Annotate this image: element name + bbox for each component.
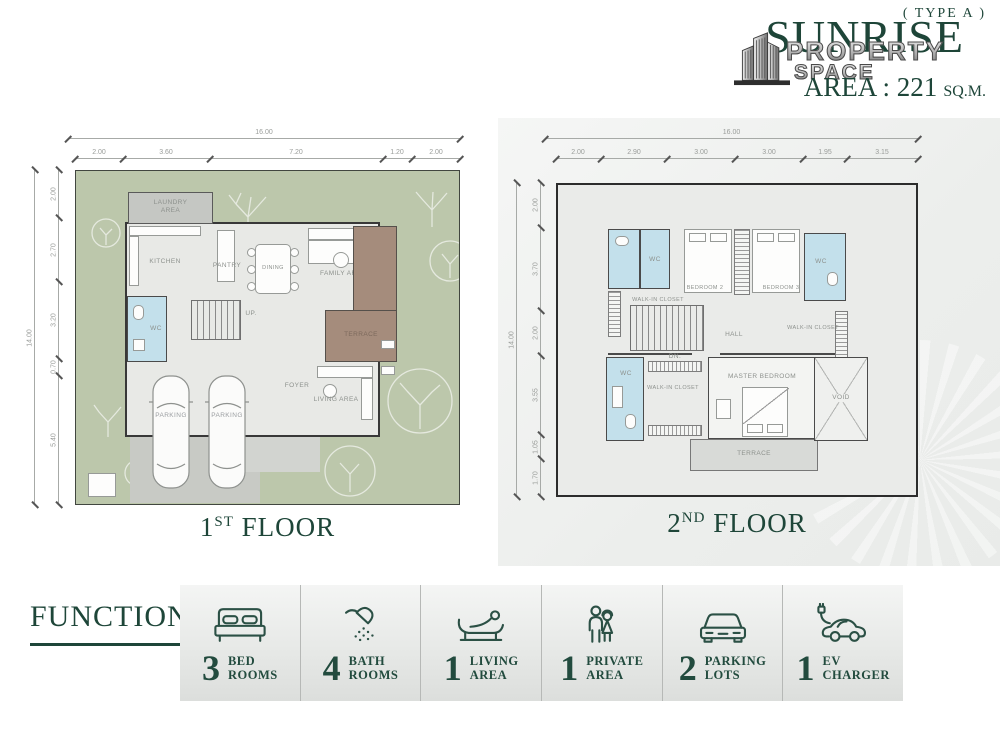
dim-label: 3.00 [762, 149, 776, 156]
bay-window [381, 340, 395, 349]
terrace [353, 226, 397, 312]
wardrobe [648, 361, 702, 372]
floor1-plan: LAUNDRY AREA KITCHEN PANTRY DINING FAMIL… [75, 170, 460, 505]
floor2-dim-total-left: 14.00 [516, 183, 517, 497]
dim-tick [456, 155, 463, 162]
family-icon [573, 603, 631, 647]
car-top-view [203, 368, 251, 498]
dim-label: 2.00 [533, 326, 540, 340]
bed [742, 387, 788, 437]
floor2-dim-segments-top: 2.00 2.90 3.00 3.00 1.95 3.15 [556, 158, 918, 159]
function-item-living: 1 LIVING AREA [420, 585, 541, 701]
function-label: PARKING [705, 655, 767, 669]
dim-label: 14.00 [509, 331, 516, 349]
dim-tick [55, 214, 62, 221]
function-label: ROOMS [228, 669, 278, 683]
dim-label: 2.00 [51, 187, 58, 201]
dim-label: 1.70 [533, 471, 540, 485]
car-icon [694, 603, 752, 647]
dim-label: 1.95 [818, 149, 832, 156]
stairs-up [191, 300, 241, 340]
terrace: TERRACE [690, 439, 818, 471]
floor1-title: 1ST FLOOR [75, 512, 460, 543]
dim-label: 3.20 [51, 313, 58, 327]
living-label: LIVING AREA [305, 396, 367, 404]
function-label: ROOMS [349, 669, 399, 683]
function-label: CHARGER [822, 669, 889, 683]
dim-label: 2.00 [92, 149, 106, 156]
pillow [747, 424, 763, 433]
floor1-title-number: 1 [200, 512, 215, 542]
function-item-private: 1 PRIVATE AREA [541, 585, 662, 701]
dim-tick [64, 135, 71, 142]
dim-label: 0.70 [51, 360, 58, 374]
wc-label: WC [811, 258, 831, 266]
bed-icon [211, 603, 269, 647]
function-label: PRIVATE [586, 655, 643, 669]
floor2-dim-segments-left: 2.00 3.70 2.00 3.55 1.05 1.70 [540, 183, 541, 497]
function-item-parking: 2 PARKING LOTS [662, 585, 783, 701]
function-label: AREA [586, 669, 643, 683]
function-panel: 3 BED ROOMS 4 BATH ROOMS [180, 585, 903, 701]
dim-label: 3.70 [533, 262, 540, 276]
dim-label: 16.00 [255, 129, 273, 136]
family-table [333, 252, 349, 268]
ev-charger-icon [814, 603, 872, 647]
function-count: 2 [679, 654, 697, 683]
living-sofa [317, 366, 373, 378]
function-count: 3 [202, 654, 220, 683]
floor1-title-ordinal: ST [214, 514, 234, 530]
foyer-label: FOYER [275, 382, 319, 390]
dim-label: 3.55 [533, 388, 540, 402]
brochure-page: { "header": { "type_label": "( TYPE A )"… [0, 0, 1000, 750]
area-label: AREA : 221SQ.M. [804, 72, 986, 103]
toilet [625, 414, 636, 429]
dim-label: 1.05 [533, 440, 540, 454]
dim-label: 16.00 [723, 129, 741, 136]
floor2-title-word: FLOOR [705, 508, 806, 538]
function-item-bedrooms: 3 BED ROOMS [180, 585, 300, 701]
parking-label: PARKING [147, 412, 195, 420]
dining-chair [290, 248, 299, 257]
terrace-label: TERRACE [326, 331, 396, 339]
wc-room: WC [127, 296, 167, 362]
stairs-label: UP. [241, 310, 261, 318]
pantry-label: PANTRY [205, 262, 249, 270]
dim-label: 2.00 [571, 149, 585, 156]
dim-tick [379, 155, 386, 162]
floor1-title-word: FLOOR [234, 512, 335, 542]
wc-label: WC [641, 256, 669, 264]
function-count: 1 [444, 654, 462, 683]
laundry-area: LAUNDRY AREA [128, 192, 213, 224]
bedroom3-label: BEDROOM 3 [750, 285, 812, 292]
entry-walkway [245, 437, 320, 472]
buildings-icon [734, 24, 790, 92]
laundry-label-2: AREA [161, 207, 180, 214]
pillow [710, 233, 727, 242]
stairs-down [630, 305, 704, 351]
utility-pad [88, 473, 116, 497]
dim-label: 3.60 [159, 149, 173, 156]
toilet [615, 236, 629, 246]
function-label: BATH [349, 655, 399, 669]
floor1-dim-segments-left: 2.00 2.70 3.20 0.70 5.40 [58, 170, 59, 505]
function-title: FUNCTION [30, 600, 194, 646]
dim-tick [31, 501, 38, 508]
function-count: 1 [560, 654, 578, 683]
car-top-view [147, 368, 195, 498]
bed [684, 229, 732, 293]
function-label: BED [228, 655, 278, 669]
closet-label: WALK-IN CLOSET [780, 325, 846, 332]
area-unit: SQ.M. [943, 83, 986, 100]
wardrobe [648, 425, 702, 436]
sink [612, 386, 623, 408]
toilet [133, 305, 144, 320]
bay-window [381, 366, 395, 375]
dim-tick [408, 155, 415, 162]
pillow [778, 233, 795, 242]
void-label: VOID [828, 394, 854, 402]
closet-label: WALK-IN CLOSET [640, 385, 706, 392]
dim-label: 3.15 [875, 149, 889, 156]
wc-room: WC [606, 357, 644, 441]
pillow [689, 233, 706, 242]
kitchen-label: KITCHEN [137, 258, 193, 266]
floor2-title: 2ND FLOOR [556, 508, 918, 539]
floor2-title-ordinal: ND [682, 510, 706, 526]
brand-header: ( TYPE A ) SUNRISE PROPERTY SPACE AREA :… [670, 0, 1000, 110]
bed [752, 229, 800, 293]
dining-chair [290, 282, 299, 291]
function-label: LIVING [470, 655, 519, 669]
terrace: TERRACE [325, 310, 397, 362]
dim-label: 1.20 [390, 149, 404, 156]
function-label: AREA [470, 669, 519, 683]
function-item-bathrooms: 4 BATH ROOMS [300, 585, 421, 701]
hall-label: HALL [714, 331, 754, 339]
terrace-label: TERRACE [691, 450, 817, 458]
floor1-dim-segments-top: 2.00 3.60 7.20 1.20 2.00 [75, 158, 460, 159]
dim-tick [456, 135, 463, 142]
wardrobe [835, 311, 848, 359]
floor1-dim-total-top: 16.00 [68, 138, 460, 139]
wc-label: WC [616, 370, 636, 378]
dim-label: 2.90 [627, 149, 641, 156]
floor2-plan: WC WALK-IN CLOSET BEDROOM 2 BEDROOM 3 WC… [556, 183, 918, 497]
floor2-title-number: 2 [667, 508, 682, 538]
dining-chair [290, 265, 299, 274]
dim-tick [119, 155, 126, 162]
dim-label: 2.70 [51, 243, 58, 257]
dim-label: 7.20 [289, 149, 303, 156]
floor2-dim-total-top: 16.00 [545, 138, 918, 139]
parking-label: PARKING [203, 412, 251, 420]
sink [133, 339, 145, 351]
wc-room: WC [608, 229, 670, 289]
toilet [827, 272, 838, 286]
dim-tick [55, 166, 62, 173]
closet-label: WALK-IN CLOSET [620, 297, 696, 304]
master-label: MASTER BEDROOM [716, 373, 808, 381]
function-label: LOTS [705, 669, 767, 683]
dim-tick [71, 155, 78, 162]
dim-label: 14.00 [27, 329, 34, 347]
wc-label: WC [146, 325, 166, 333]
dim-tick [55, 501, 62, 508]
pillow [757, 233, 774, 242]
dining-label: DINING [255, 265, 291, 272]
wardrobe [734, 229, 750, 295]
function-count: 1 [796, 654, 814, 683]
shower-icon [332, 603, 390, 647]
function-count: 4 [323, 654, 341, 683]
blanket-line [743, 388, 789, 424]
function-label: EV [822, 655, 889, 669]
wc-room: WC [804, 233, 846, 301]
floor1-dim-total-left: 14.00 [34, 170, 35, 505]
wall [720, 353, 848, 355]
area-value: AREA : 221 [804, 72, 938, 102]
dim-tick [206, 155, 213, 162]
dim-label: 2.00 [533, 198, 540, 212]
lounge-icon [452, 603, 510, 647]
dim-label: 3.00 [694, 149, 708, 156]
pantry-counter [217, 230, 235, 282]
dim-tick [31, 166, 38, 173]
dim-label: 5.40 [51, 433, 58, 447]
bedroom2-label: BEDROOM 2 [674, 285, 736, 292]
dim-tick [55, 278, 62, 285]
kitchen-counter [129, 226, 201, 236]
laundry-label: LAUNDRY [154, 199, 188, 206]
pillow [767, 424, 783, 433]
dim-label: 2.00 [429, 149, 443, 156]
dining-chair [247, 282, 256, 291]
dining-chair [247, 248, 256, 257]
function-item-ev: 1 EV CHARGER [782, 585, 903, 701]
desk [716, 399, 731, 419]
stairs-label: DN. [662, 353, 688, 361]
void-area: VOID [814, 357, 868, 441]
